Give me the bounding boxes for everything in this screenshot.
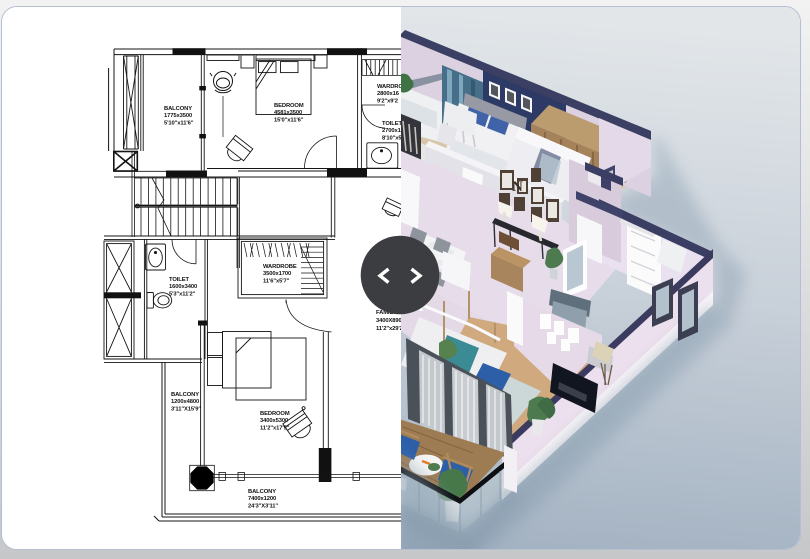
svg-text:BEDROOM4581x350015'0"x11'6": BEDROOM4581x350015'0"x11'6" <box>274 103 304 123</box>
svg-text:BALCONY7400x120024'3"X3'11": BALCONY7400x120024'3"X3'11" <box>248 489 278 509</box>
svg-text:BALCONY1200x48003'11"X15'9": BALCONY1200x48003'11"X15'9" <box>171 392 201 412</box>
svg-text:BEDROOM3400x530011'2"x17'5": BEDROOM3400x530011'2"x17'5" <box>260 411 290 431</box>
svg-text:BALCONY1775x35005'10"x11'6": BALCONY1775x35005'10"x11'6" <box>164 106 194 126</box>
svg-text:N: N <box>512 179 523 195</box>
